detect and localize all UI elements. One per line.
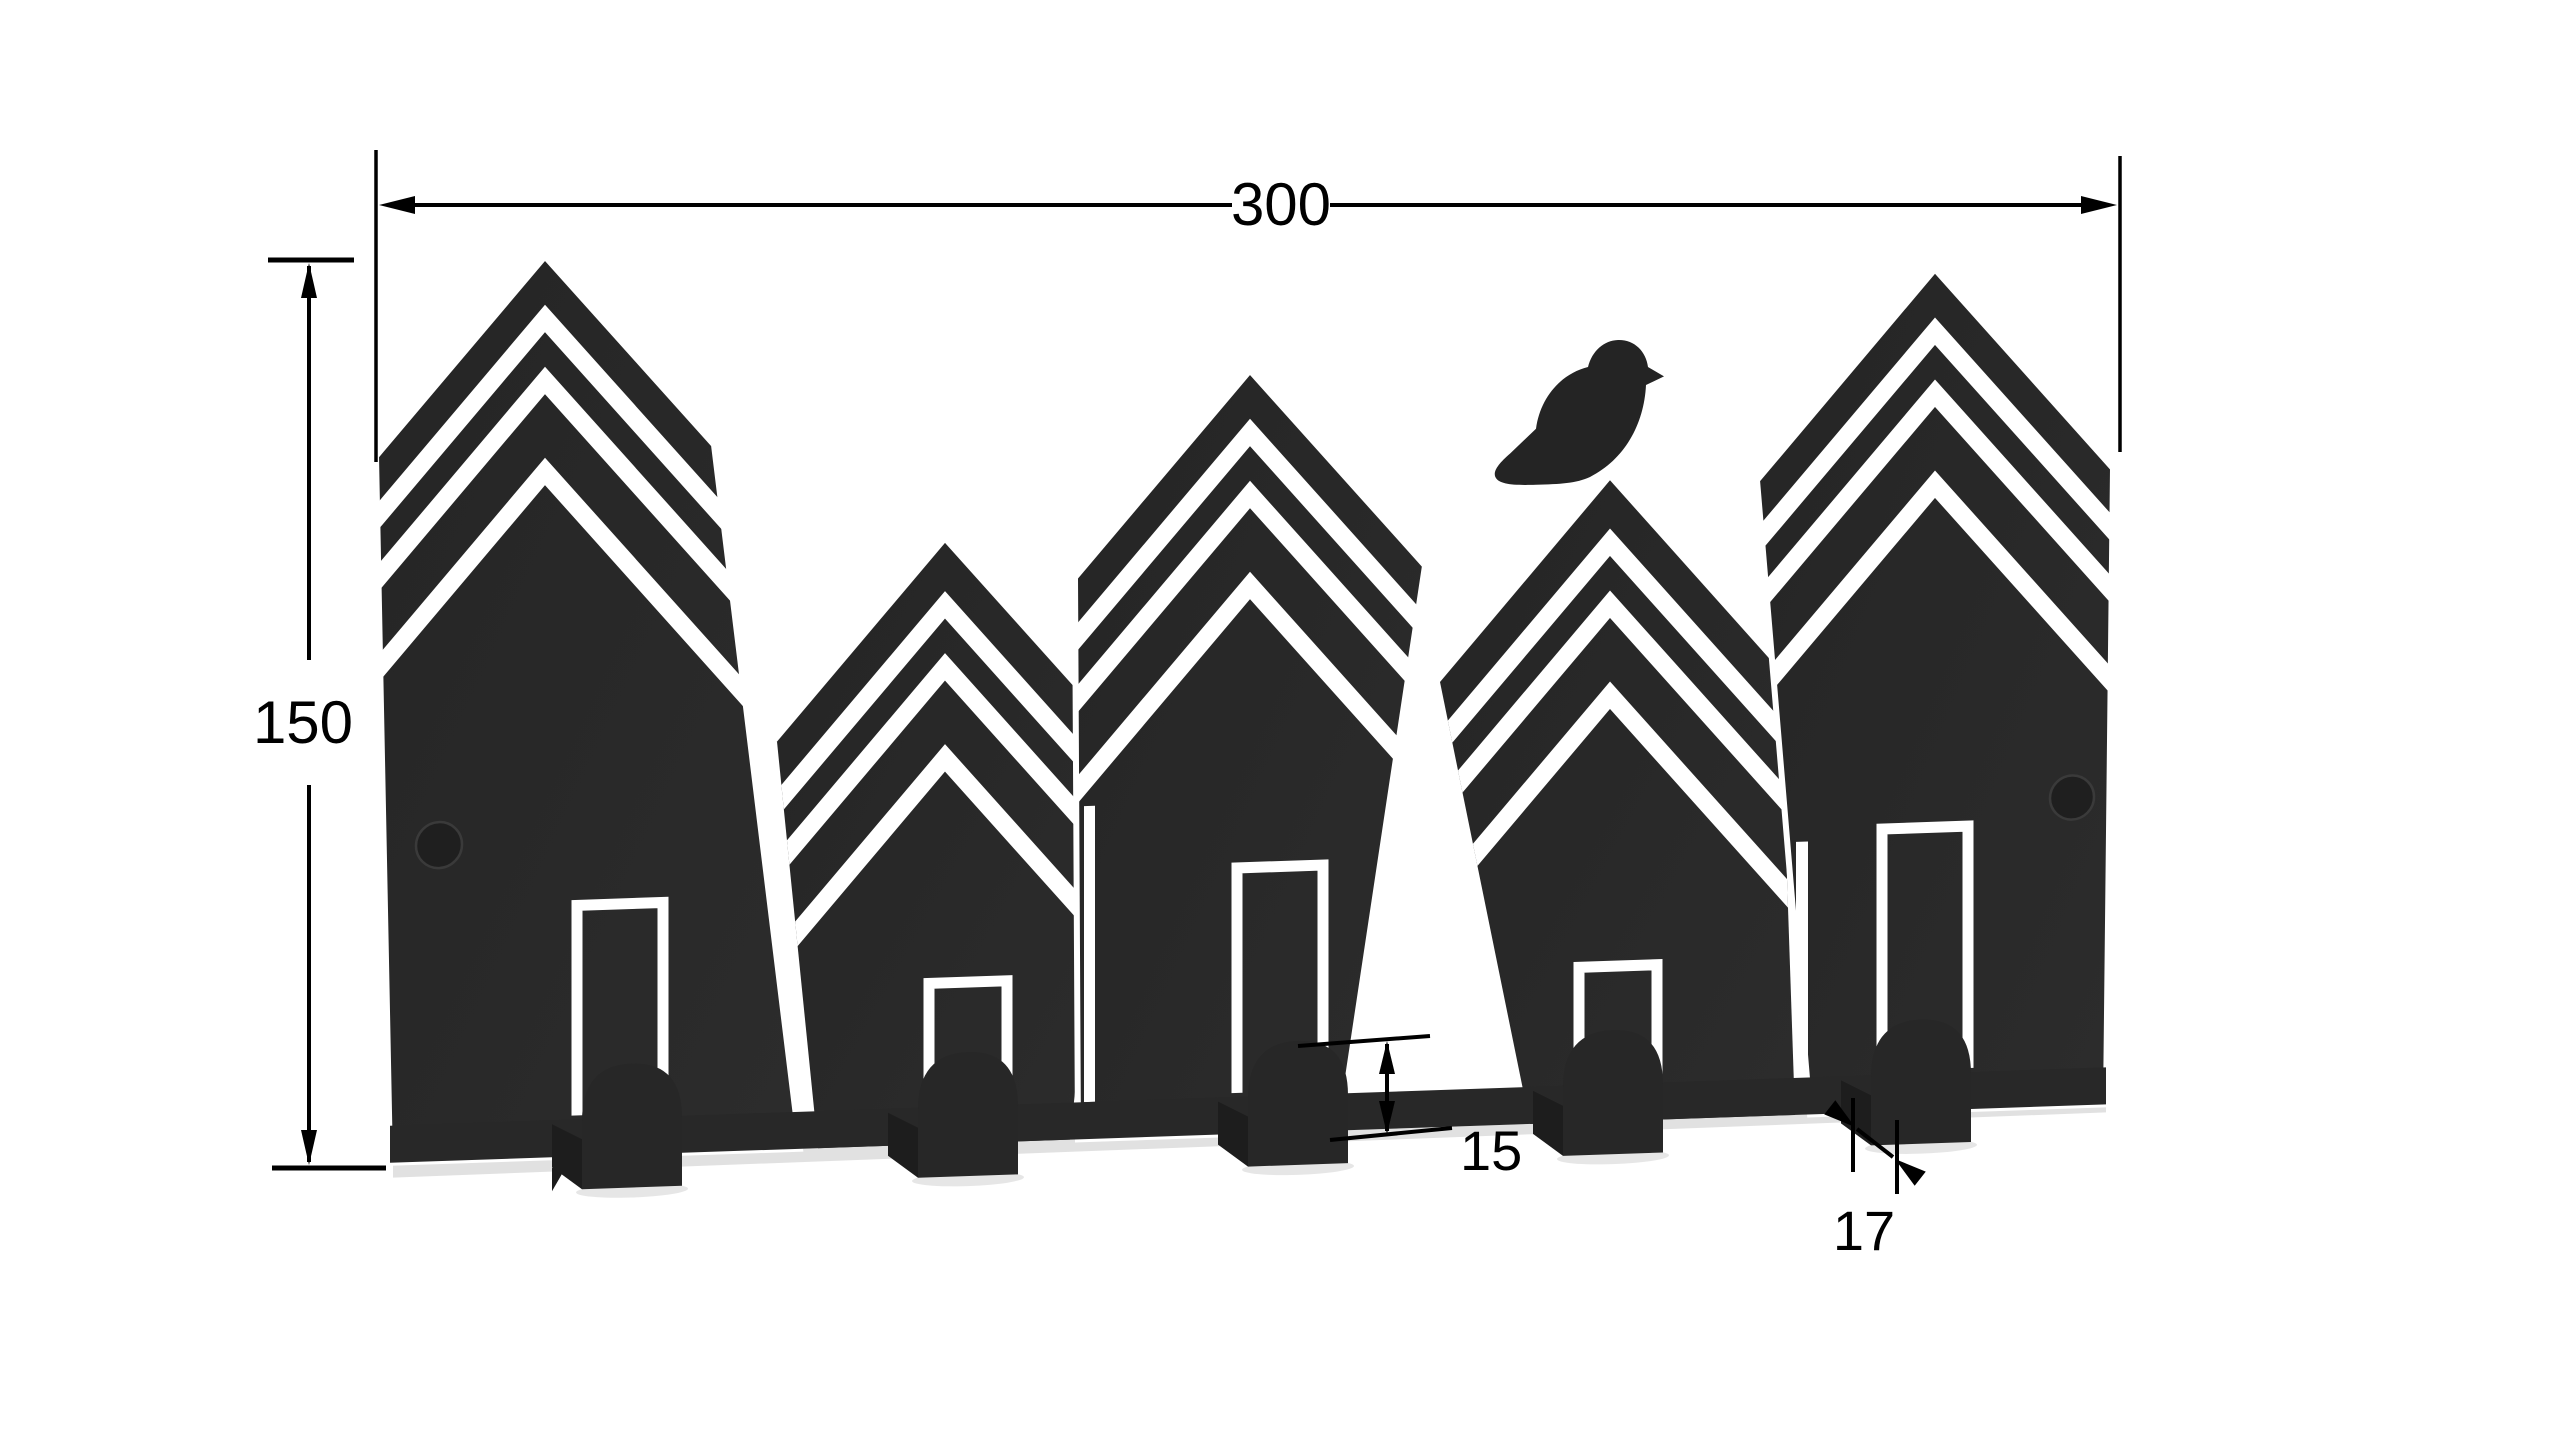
- arrowhead-up: [301, 263, 317, 298]
- mounting-hole-left: [416, 821, 462, 869]
- dimension-hook-bend-value: 17: [1833, 1199, 1895, 1262]
- dimension-height-value: 150: [253, 689, 353, 756]
- arrowhead-left: [379, 196, 415, 214]
- kerf-slit-house4-5: [1796, 842, 1808, 1078]
- key-rack-piece: [125, 195, 2355, 1269]
- arrowhead-down: [301, 1130, 317, 1165]
- dimension-width-value: 300: [1231, 171, 1331, 238]
- dimension-hook-protrusion-value: 15: [1460, 1119, 1522, 1182]
- bird-icon: [1495, 338, 1664, 486]
- arrowhead-right: [2081, 196, 2117, 214]
- technical-drawing: 300 150 15 17: [0, 0, 2560, 1440]
- mounting-hole-right: [2050, 775, 2094, 820]
- technical-drawing-canvas: 300 150 15 17: [0, 0, 2560, 1440]
- kerf-slit-house2-3: [1084, 806, 1095, 1102]
- arrowhead-up: [1379, 1041, 1395, 1074]
- dimension-overall-height: 150: [253, 260, 386, 1168]
